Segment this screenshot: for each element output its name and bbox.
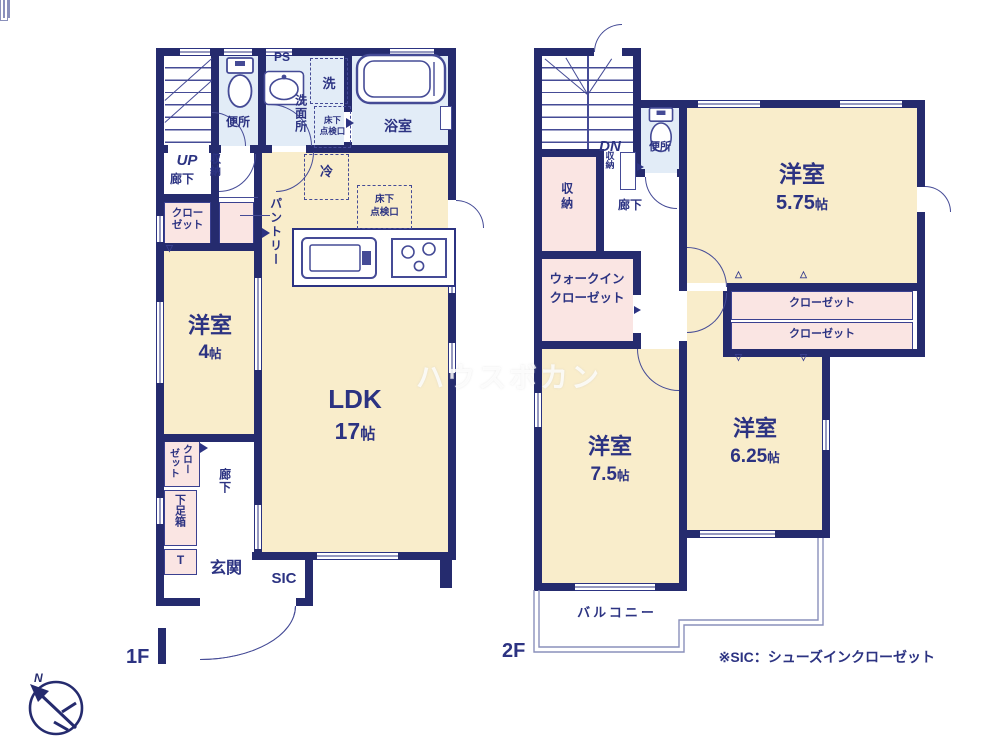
floor-2-label: 2F — [502, 640, 525, 663]
balcony-outline — [530, 534, 832, 658]
bifold-marker: ▽ — [735, 352, 742, 363]
wall — [822, 357, 830, 420]
window — [698, 100, 760, 108]
window — [840, 100, 902, 108]
label-hallway-2f: 廊下 — [608, 199, 652, 213]
door-marker — [637, 163, 644, 171]
label-hall-storage: 収納 — [604, 151, 613, 169]
compass-icon: N — [22, 670, 90, 740]
wall — [534, 48, 594, 56]
wall — [679, 100, 687, 291]
wall — [917, 212, 925, 357]
wall — [917, 100, 925, 187]
bifold-marker: ▽ — [800, 352, 807, 363]
label-closet-1: クローゼット — [731, 297, 913, 310]
compass-north-label: N — [34, 671, 43, 685]
label-storage-2f: 収納 — [560, 182, 573, 212]
door-arc — [594, 24, 622, 52]
label-western-575: 洋室 5.75帖 — [687, 161, 917, 215]
door-arc — [925, 186, 951, 212]
label-western-625: 洋室 6.25帖 — [687, 416, 823, 468]
label-western-75: 洋室 7.5帖 — [541, 434, 679, 486]
stair-line — [587, 56, 589, 149]
wall — [822, 450, 830, 538]
label-closet-2: クローゼット — [731, 328, 913, 341]
wall — [760, 100, 840, 108]
label-balcony: バルコニー — [552, 606, 682, 621]
door-marker — [634, 306, 641, 314]
sic-footnote: ※SIC：シューズインクローゼット — [700, 650, 935, 666]
watermark: ハウスボカン — [416, 356, 602, 396]
door-opening — [917, 187, 925, 212]
wall — [677, 169, 687, 177]
window — [534, 393, 542, 427]
bifold-marker: △ — [800, 269, 807, 280]
floorplan-canvas: 洗 床下点検口 冷 床下点検口 ▽ 便所 PS 洗面所 浴室 UP 廊下 収納 … — [0, 0, 1000, 750]
wall — [727, 283, 925, 291]
bifold-marker: △ — [735, 269, 742, 280]
wall — [534, 341, 637, 349]
hall-storage-box — [620, 152, 636, 190]
wall — [534, 251, 641, 259]
wall — [596, 157, 604, 259]
label-walkin-closet: ウォークインクローゼット — [539, 270, 635, 308]
wall — [723, 349, 925, 357]
label-toilet-2f: 便所 — [638, 141, 682, 154]
window — [822, 420, 830, 450]
